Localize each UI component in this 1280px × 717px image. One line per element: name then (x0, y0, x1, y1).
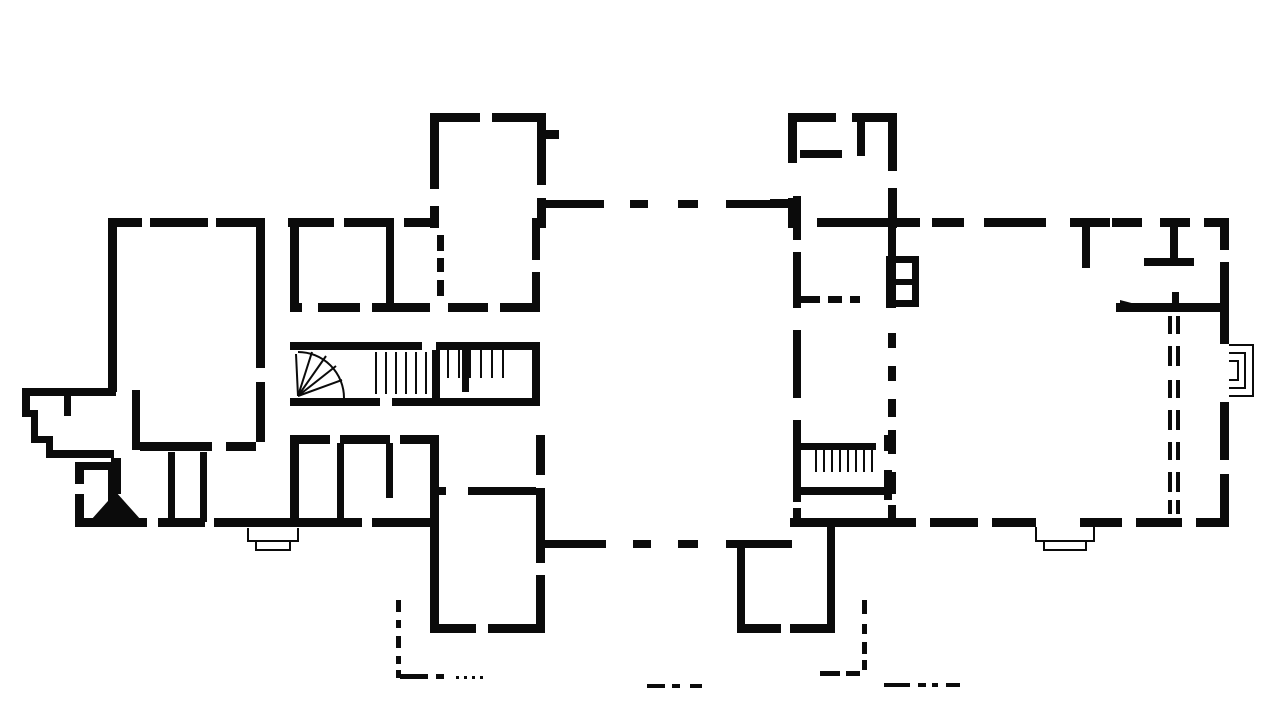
steps-outline (256, 541, 290, 550)
wall-segment (75, 494, 84, 527)
wall-segment (898, 218, 920, 227)
dashed-wall-segment (888, 472, 896, 494)
wall-segment (536, 435, 545, 475)
wall-segment (372, 303, 430, 312)
wall-segment (404, 218, 434, 227)
wall-segment (256, 382, 265, 442)
wall-segment (132, 390, 140, 450)
dashed-wall-segment (1176, 500, 1180, 514)
wall-segment (546, 130, 559, 139)
dashed-wall-segment (464, 676, 467, 679)
steps-outline (248, 528, 298, 541)
dashed-wall-segment (1168, 472, 1172, 492)
wall-segment (46, 450, 114, 458)
wall-segment (214, 518, 300, 527)
wall-segment (290, 303, 302, 312)
wall-segment (984, 218, 1046, 227)
dashed-wall-segment (400, 674, 428, 679)
floor-plan (0, 0, 1280, 717)
dashed-wall-segment (647, 684, 665, 688)
wall-segment (1144, 258, 1194, 266)
wall-segment (532, 272, 540, 312)
dashed-wall-segment (1168, 500, 1172, 514)
dashed-wall-segment (1176, 410, 1180, 430)
wall-segment (372, 518, 430, 527)
wall-segment (468, 487, 536, 495)
wall-segment (430, 487, 446, 495)
wall-segment (462, 350, 469, 392)
wall-segment (992, 518, 1036, 527)
wall-segment (168, 452, 175, 522)
dashed-wall-segment (630, 200, 648, 208)
wall-segment (790, 624, 835, 633)
stair-tread (296, 354, 298, 396)
dashed-wall-segment (946, 683, 960, 687)
dashed-wall-segment (437, 280, 444, 296)
wall-segment (737, 548, 745, 632)
wall-segment (392, 398, 538, 406)
wall-segment (790, 518, 898, 527)
wall-segment (888, 218, 896, 258)
wall-segment (430, 113, 439, 189)
wall-segment (290, 218, 299, 312)
wall-segment (888, 113, 897, 171)
wall-segment (536, 488, 545, 563)
steps-outline (1036, 527, 1094, 541)
dashed-wall-segment (1168, 316, 1172, 334)
dashed-wall-segment (1176, 316, 1180, 334)
wall-segment (912, 256, 919, 307)
dashed-wall-segment (1168, 380, 1172, 398)
wall-segment (430, 624, 476, 633)
dashed-wall-segment (1176, 442, 1180, 460)
dashed-wall-segment (888, 399, 896, 417)
wall-segment (726, 200, 790, 208)
dashed-wall-segment (884, 683, 910, 687)
wall-segment (340, 435, 390, 444)
wall-segment (800, 487, 892, 495)
dashed-wall-segment (1168, 442, 1172, 460)
dashed-wall-segment (437, 258, 444, 272)
wall-segment (544, 540, 606, 548)
dashed-walls-layer (396, 200, 1180, 688)
wall-segment (386, 222, 394, 310)
dashed-wall-segment (396, 600, 401, 612)
dashed-wall-segment (396, 636, 401, 648)
wall-segment (290, 435, 299, 525)
dashed-wall-segment (888, 430, 896, 454)
wall-segment (158, 518, 205, 527)
wall-segment (793, 330, 801, 398)
dashed-wall-segment (1176, 380, 1180, 398)
wall-segment (64, 388, 71, 416)
wall-segment (788, 113, 797, 163)
wall-segment (800, 443, 876, 450)
wall-segment (318, 303, 360, 312)
wall-segment (888, 518, 916, 527)
wall-segment (448, 303, 488, 312)
dashed-wall-segment (1176, 346, 1180, 366)
wall-segment (930, 518, 978, 527)
dashed-wall-segment (800, 296, 820, 303)
wall-segment (793, 508, 801, 527)
wall-segment (817, 218, 900, 227)
wall-segment (532, 218, 540, 260)
dashed-wall-segment (633, 540, 651, 548)
wall-segment (1080, 518, 1122, 527)
wall-segment (108, 218, 117, 392)
dashed-wall-segment (472, 676, 475, 679)
stair-treads-layer (296, 350, 872, 472)
steps-outline (1229, 361, 1238, 380)
wall-segment (430, 435, 439, 632)
walls-layer (22, 113, 1229, 633)
wall-segment (857, 121, 865, 156)
wall-segment (256, 218, 265, 368)
wall-segment (1170, 220, 1178, 262)
wall-segment (200, 452, 207, 522)
wall-segment (726, 540, 792, 548)
wall-segment (400, 435, 432, 444)
wall-segment (537, 113, 546, 185)
dashed-wall-segment (396, 656, 401, 664)
dashed-wall-segment (828, 296, 842, 303)
dashed-wall-segment (1176, 472, 1180, 492)
wall-segment (111, 458, 121, 494)
dashed-wall-segment (1168, 410, 1172, 430)
dashed-wall-segment (862, 660, 867, 670)
wall-segment (290, 398, 380, 406)
wall-segment (1172, 292, 1179, 312)
dashed-wall-segment (820, 671, 840, 676)
dashed-wall-segment (862, 624, 867, 634)
wall-segment (436, 342, 533, 350)
wall-segment (793, 252, 801, 308)
wall-segment (226, 442, 256, 451)
wall-segment (290, 342, 422, 350)
dashed-wall-segment (850, 296, 860, 303)
dashed-wall-segment (436, 674, 444, 679)
dashed-wall-segment (888, 366, 896, 381)
wall-segment (1196, 518, 1229, 527)
wall-segment (140, 442, 212, 451)
steps-outline (1044, 541, 1086, 550)
wall-segment (827, 518, 835, 632)
wall-segment (932, 218, 964, 227)
wall-segment (1136, 518, 1182, 527)
dashed-wall-segment (690, 684, 702, 688)
wall-segment (1220, 402, 1229, 460)
wall-segment (1082, 222, 1090, 268)
wall-segment (150, 218, 208, 227)
dashed-wall-segment (862, 642, 867, 654)
dashed-wall-segment (437, 235, 444, 251)
dashed-wall-segment (396, 620, 401, 628)
floor-plan-canvas (0, 0, 1280, 717)
wall-segment (536, 575, 545, 632)
wall-segment (532, 342, 540, 406)
wall-segment (337, 443, 344, 521)
wall-segment (300, 518, 362, 527)
dashed-wall-segment (862, 600, 867, 614)
dashed-wall-segment (480, 676, 483, 679)
plan-symbol (91, 492, 141, 520)
wall-segment (386, 443, 393, 498)
dashed-wall-segment (678, 200, 698, 208)
dashed-wall-segment (456, 676, 459, 679)
dashed-wall-segment (846, 671, 860, 676)
wall-segment (793, 196, 801, 240)
dashed-wall-segment (888, 333, 896, 348)
wall-segment (793, 420, 801, 502)
dashed-wall-segment (932, 683, 938, 687)
wall-segment (432, 350, 440, 398)
wall-segment (737, 624, 781, 633)
wall-segment (1112, 218, 1142, 227)
wall-segment (800, 150, 842, 158)
dashed-wall-segment (918, 683, 926, 687)
wall-segment (488, 624, 545, 633)
wall-segment (75, 462, 110, 470)
dashed-wall-segment (678, 540, 698, 548)
symbols-layer (91, 300, 1143, 520)
dashed-wall-segment (672, 684, 680, 688)
wall-segment (1220, 218, 1229, 250)
dashed-wall-segment (1168, 346, 1172, 366)
wall-segment (540, 200, 604, 208)
